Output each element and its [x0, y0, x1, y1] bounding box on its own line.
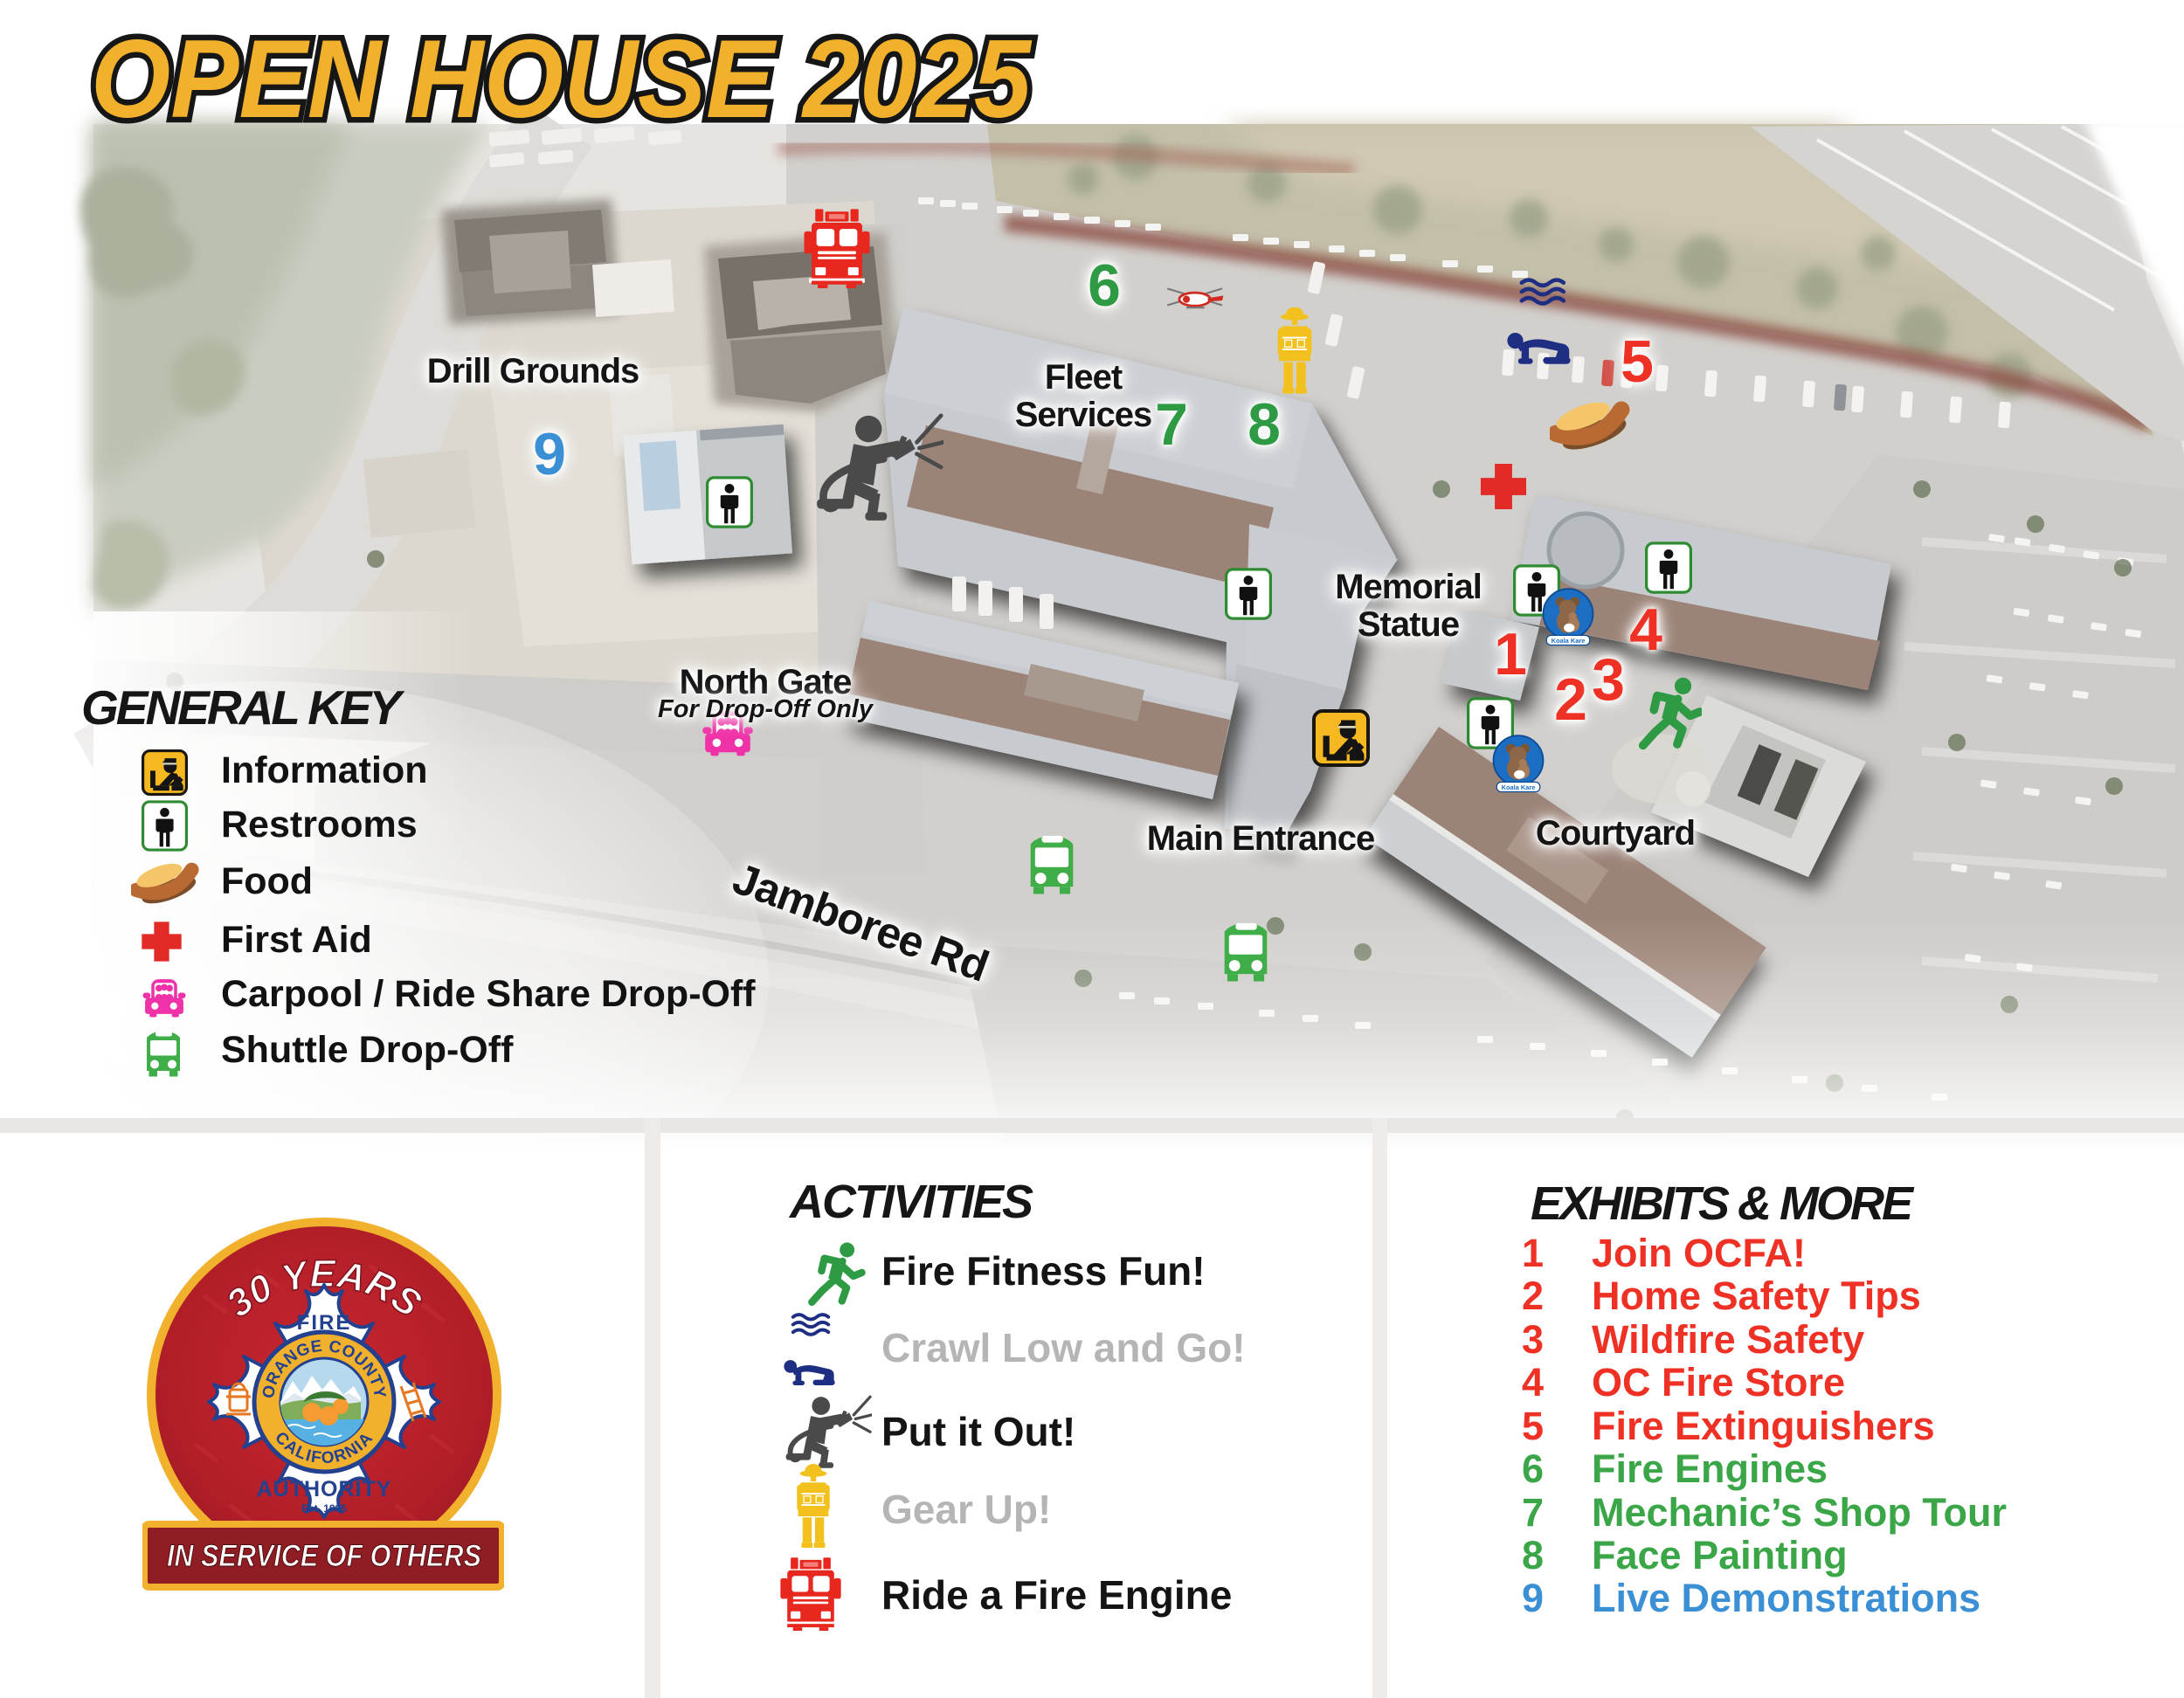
svg-text:AUTHORITY: AUTHORITY [257, 1477, 392, 1501]
svg-text:OPEN HOUSE 2025: OPEN HOUSE 2025 [91, 17, 1033, 138]
svg-text:IN SERVICE OF OTHERS: IN SERVICE OF OTHERS [167, 1539, 481, 1573]
svg-text:Est. 1995: Est. 1995 [301, 1502, 347, 1515]
